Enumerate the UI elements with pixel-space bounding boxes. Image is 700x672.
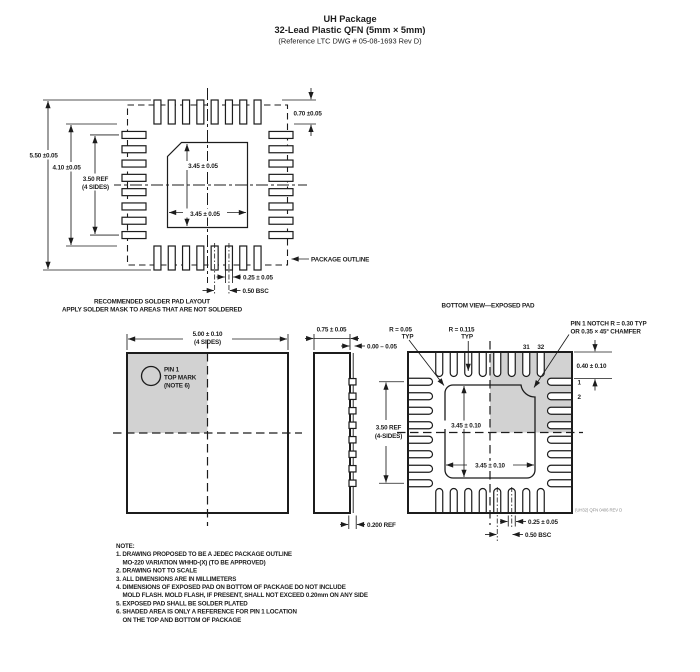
pin-slot <box>548 480 573 487</box>
dim-body-width-label: 0.75 ± 0.05 <box>317 327 347 334</box>
pad <box>154 246 161 270</box>
lead <box>349 466 356 472</box>
pad <box>122 203 146 210</box>
lead <box>349 379 356 385</box>
pad <box>122 217 146 224</box>
pad <box>254 100 261 124</box>
pad <box>122 131 146 138</box>
package-body-side-view <box>314 353 350 513</box>
dim-overall-label: 5.50 ±0.05 <box>30 153 59 160</box>
lead <box>349 422 356 428</box>
note-line: 5. EXPOSED PAD SHALL BE SOLDER PLATED <box>116 600 248 607</box>
note-line: 4. DIMENSIONS OF EXPOSED PAD ON BOTTOM O… <box>116 584 346 591</box>
note-line: MOLD FLASH. MOLD FLASH, IF PRESENT, SHAL… <box>123 592 368 599</box>
pin-slot <box>508 352 515 377</box>
dim-standoff: 0.00 – 0.05 <box>341 344 398 351</box>
pad <box>269 232 293 239</box>
pin-slot <box>408 378 433 385</box>
pin-slot <box>436 352 443 377</box>
dim-lead-thickness: 0.200 REF <box>340 516 396 530</box>
dim-center-pad-h-label: 3.45 ± 0.05 <box>190 211 220 218</box>
dim-pad-length-label: 0.70 ±0.05 <box>294 111 323 118</box>
pin-slot <box>450 489 457 514</box>
pad <box>168 246 175 270</box>
note-line: MO-220 VARIATION WHHD-(X) (TO BE APPROVE… <box>123 559 266 566</box>
package-drawing-page: UH Package 32-Lead Plastic QFN (5mm × 5m… <box>0 0 700 672</box>
package-outline-label: PACKAGE OUTLINE <box>311 257 369 264</box>
pin-slot <box>408 436 433 443</box>
pin-slot <box>479 352 486 377</box>
dim-body-label-1: 5.00 ± 0.10 <box>193 331 223 338</box>
dim-pitch-label: 0.50 BSC <box>525 532 552 539</box>
note-line: 1. DRAWING PROPOSED TO BE A JEDEC PACKAG… <box>116 551 292 558</box>
pad <box>254 246 261 270</box>
pin-slot <box>548 436 573 443</box>
pad <box>122 232 146 239</box>
dim-pitch-label: 0.50 BSC <box>243 288 270 295</box>
lead <box>349 480 356 486</box>
pad <box>269 189 293 196</box>
dim-standoff-label: 0.00 – 0.05 <box>367 344 398 351</box>
page-subtitle: 32-Lead Plastic QFN (5mm × 5mm) <box>275 25 426 35</box>
dim-pad-length-0-70: 0.70 ±0.05 <box>282 88 322 136</box>
pin-slot <box>537 489 544 514</box>
pad-radius-label-1: R = 0.05 <box>389 326 412 333</box>
page-title: UH Package <box>323 14 376 24</box>
pin-2-label: 2 <box>578 394 582 401</box>
dim-lead-span-label-2: (4-SIDES) <box>375 433 402 440</box>
pin-slot <box>523 352 530 377</box>
pin-slot <box>408 393 433 400</box>
pad <box>269 146 293 153</box>
lead <box>349 393 356 399</box>
note-line: ON THE TOP AND BOTTOM OF PACKAGE <box>123 617 242 624</box>
pin-32-label: 32 <box>537 344 544 351</box>
dim-inner-label: 4.10 ±0.05 <box>53 165 82 172</box>
note-line: 2. DRAWING NOT TO SCALE <box>116 568 197 575</box>
dim-lead-thickness-label: 0.200 REF <box>367 522 396 529</box>
pin-slot <box>523 489 530 514</box>
pin-31-label: 31 <box>523 344 530 351</box>
top-view: PIN 1 TOP MARK (NOTE 6) 5.00 ± 0.10 (4 S… <box>113 331 302 526</box>
pad <box>183 100 190 124</box>
dim-pad-span-3-50: 3.50 REF (4 SIDES) <box>77 135 119 235</box>
pad <box>154 100 161 124</box>
package-outline-callout: PACKAGE OUTLINE <box>292 257 370 264</box>
pin1-label-3: (NOTE 6) <box>164 383 190 390</box>
pad <box>197 246 204 270</box>
pad <box>211 100 218 124</box>
pad <box>240 100 247 124</box>
pin1-label-1: PIN 1 <box>164 367 180 374</box>
dim-exposed-pad-v-label: 3.45 ± 0.10 <box>451 422 481 429</box>
dim-lead-width-label: 0.25 ± 0.05 <box>528 519 558 526</box>
drawing-reference: (Reference LTC DWG # 05-08-1693 Rev D) <box>278 37 421 46</box>
pin-slot <box>408 480 433 487</box>
pin-slot <box>408 407 433 414</box>
pin-slot <box>548 451 573 458</box>
lead <box>349 451 356 457</box>
pad <box>122 146 146 153</box>
pin-slot <box>479 489 486 514</box>
pin1-notch-label-1: PIN 1 NOTCH R = 0.30 TYP <box>571 320 647 327</box>
pin-slot <box>408 422 433 429</box>
dim-edge-to-lead-label: 0.40 ± 0.10 <box>577 363 607 370</box>
pin-slot <box>548 378 573 385</box>
dim-exposed-pad-horizontal: 3.45 ± 0.10 <box>446 461 534 470</box>
bottom-view-title: BOTTOM VIEW—EXPOSED PAD <box>442 303 535 310</box>
dim-exposed-pad-h-label: 3.45 ± 0.10 <box>475 463 505 470</box>
pin-slot <box>548 407 573 414</box>
notes-heading: NOTE: <box>116 543 135 550</box>
dim-lead-span-label-1: 3.50 REF <box>376 425 402 432</box>
pin-slot <box>408 451 433 458</box>
dim-center-pad-v-label: 3.45 ± 0.05 <box>188 163 218 170</box>
drawing-canvas: UH Package 32-Lead Plastic QFN (5mm × 5m… <box>0 0 700 672</box>
dim-pad-span-label-1: 3.50 REF <box>83 176 109 183</box>
pad <box>122 189 146 196</box>
pad <box>269 160 293 167</box>
note-line: 6. SHADED AREA IS ONLY A REFERENCE FOR P… <box>116 609 297 616</box>
pad <box>269 174 293 181</box>
pin-slot <box>494 352 501 377</box>
dim-body-label-2: (4 SIDES) <box>194 339 221 346</box>
pad <box>122 174 146 181</box>
pad <box>269 131 293 138</box>
slot-radius-label-1: R = 0.115 <box>449 326 475 333</box>
pad <box>225 100 232 124</box>
note-line: 3. ALL DIMENSIONS ARE IN MILLIMETERS <box>116 576 236 583</box>
header: UH Package 32-Lead Plastic QFN (5mm × 5m… <box>275 14 426 46</box>
pad <box>197 100 204 124</box>
dim-pad-width-label: 0.25 ± 0.05 <box>243 275 273 282</box>
notes-section: NOTE: 1. DRAWING PROPOSED TO BE A JEDEC … <box>116 543 368 624</box>
pad <box>240 246 247 270</box>
dim-body-width-0-75: 0.75 ± 0.05 <box>305 327 359 351</box>
pin-slot <box>436 489 443 514</box>
pin-slot <box>548 422 573 429</box>
pad-radius-label-2: TYP <box>402 333 414 340</box>
pad <box>168 100 175 124</box>
drawing-rev-note: (UH32) QFN 0406 REV D <box>575 508 622 513</box>
pin-slot <box>548 465 573 472</box>
dim-pad-span-label-2: (4 SIDES) <box>82 184 109 191</box>
pad <box>122 160 146 167</box>
solder-caption-2: APPLY SOLDER MASK TO AREAS THAT ARE NOT … <box>62 307 243 314</box>
solder-pad-layout-view: 5.50 ±0.05 4.10 ±0.05 3.50 REF (4 SIDES)… <box>29 88 370 314</box>
pin-1-label: 1 <box>578 379 582 386</box>
slot-radius-label-2: TYP <box>461 333 473 340</box>
pin1-notch-label-2: OR 0.35 × 45° CHAMFER <box>571 327 642 335</box>
pin-slot <box>450 352 457 377</box>
pad <box>183 246 190 270</box>
lead <box>349 437 356 443</box>
pin-slot <box>465 489 472 514</box>
pin-slot <box>548 393 573 400</box>
solder-caption-1: RECOMMENDED SOLDER PAD LAYOUT <box>94 299 210 306</box>
pin-slot <box>408 465 433 472</box>
lead <box>349 408 356 414</box>
pin1-label-2: TOP MARK <box>164 375 197 382</box>
pad <box>269 203 293 210</box>
pad <box>269 217 293 224</box>
bottom-view: BOTTOM VIEW—EXPOSED PAD <box>389 303 646 542</box>
